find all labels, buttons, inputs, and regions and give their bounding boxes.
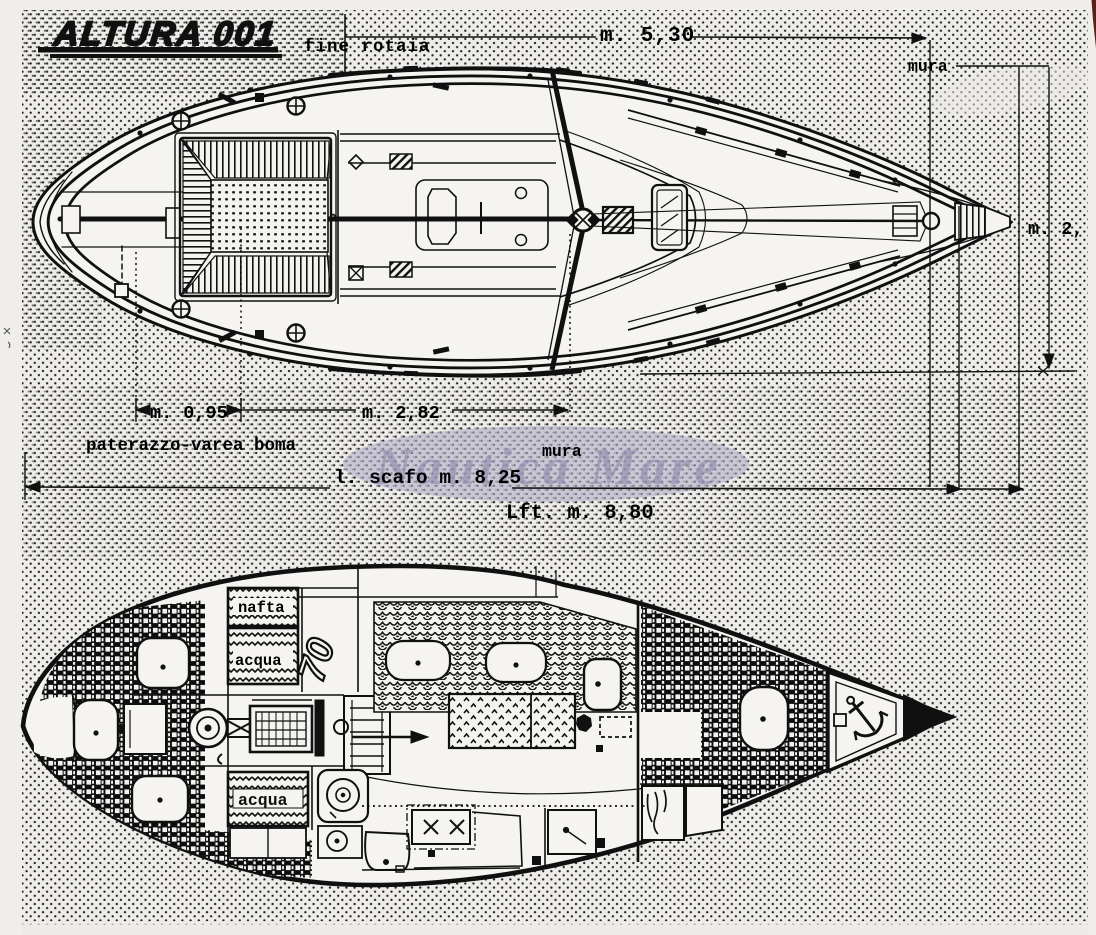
- svg-text:m. 5,30: m. 5,30: [600, 25, 695, 48]
- svg-text:Lft. m. 8,80: Lft. m. 8,80: [506, 502, 654, 525]
- svg-text:mura: mura: [908, 57, 948, 76]
- svg-text:m. 2,82: m. 2,82: [362, 403, 440, 424]
- svg-text:paterazzo-varea boma: paterazzo-varea boma: [86, 436, 297, 456]
- svg-text:l. scafo m. 8,25: l. scafo m. 8,25: [334, 467, 521, 489]
- svg-text:m. 2,: m. 2,: [1028, 219, 1084, 240]
- svg-text:nafta: nafta: [238, 599, 285, 617]
- svg-text:acqua: acqua: [235, 652, 282, 670]
- svg-text:fine rotaia: fine rotaia: [304, 37, 431, 57]
- svg-text:mura: mura: [542, 442, 582, 461]
- svg-text:m. 0,95: m. 0,95: [150, 403, 228, 424]
- svg-text:acqua: acqua: [238, 791, 288, 810]
